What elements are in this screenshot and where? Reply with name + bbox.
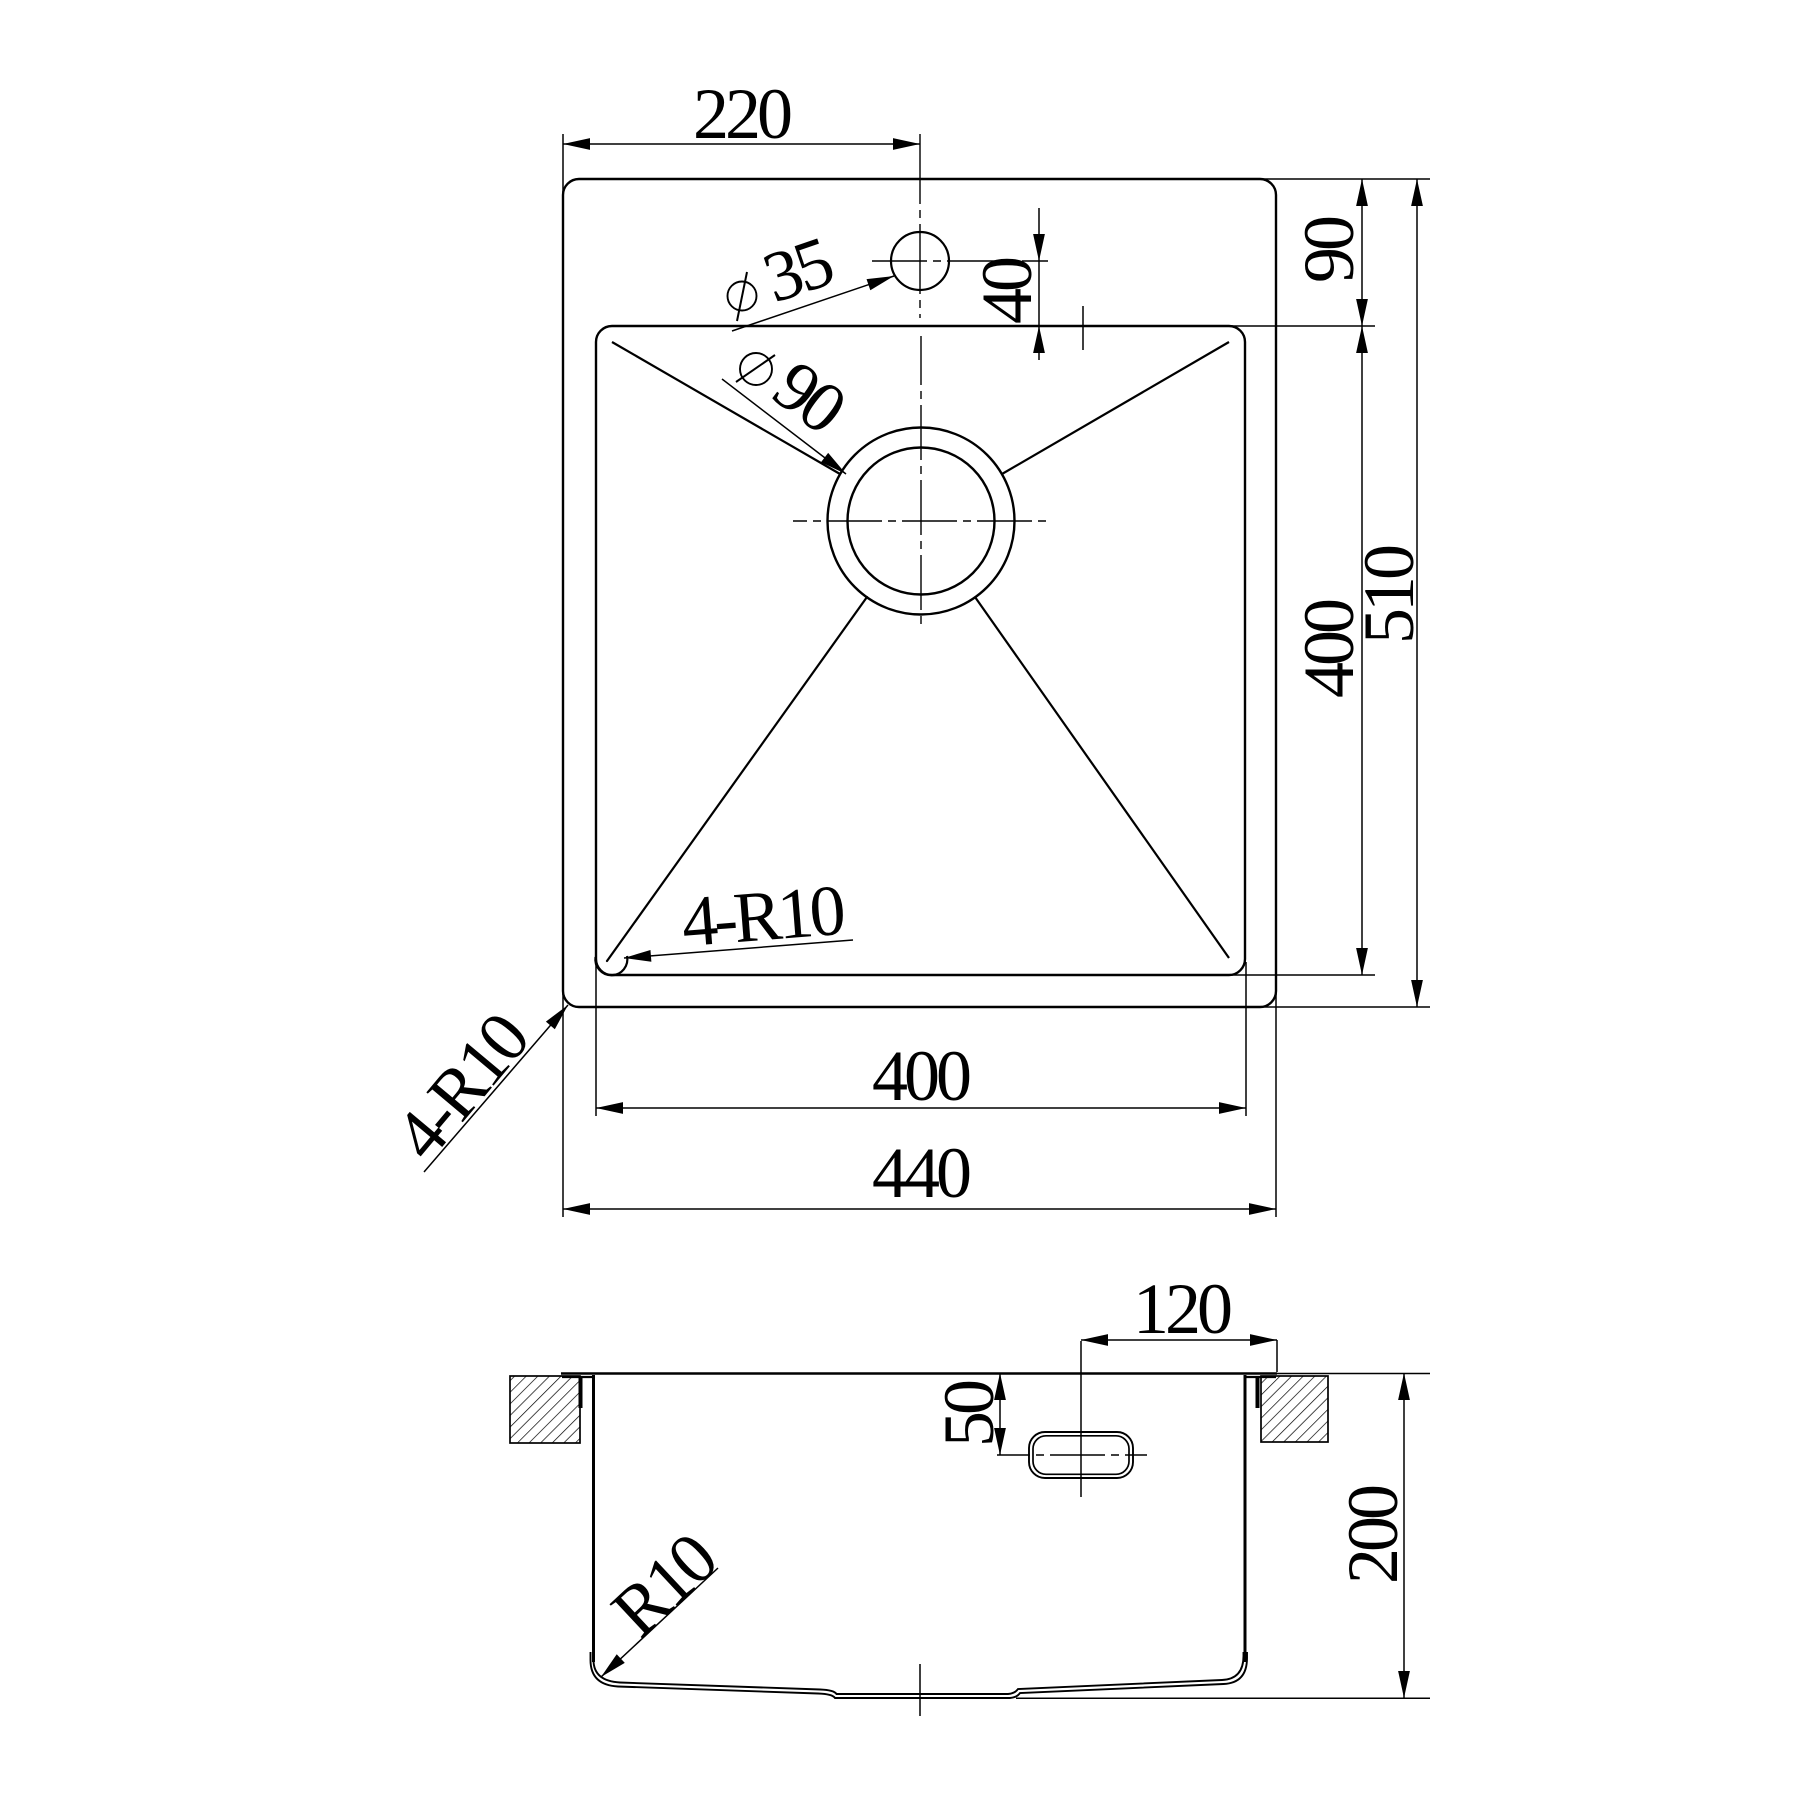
svg-text:90: 90 — [759, 345, 860, 449]
svg-text:200: 200 — [1333, 1486, 1413, 1584]
svg-text:35: 35 — [753, 221, 841, 318]
svg-text:4-R10: 4-R10 — [379, 999, 544, 1175]
svg-text:440: 440 — [872, 1133, 970, 1213]
svg-text:50: 50 — [929, 1381, 1009, 1447]
svg-text:120: 120 — [1133, 1269, 1231, 1349]
svg-text:90: 90 — [1289, 217, 1369, 283]
svg-text:220: 220 — [693, 74, 791, 154]
svg-text:4-R10: 4-R10 — [679, 870, 847, 962]
svg-text:R10: R10 — [596, 1518, 731, 1652]
svg-text:40: 40 — [967, 258, 1047, 324]
svg-text:510: 510 — [1349, 546, 1429, 644]
svg-text:400: 400 — [872, 1036, 970, 1116]
